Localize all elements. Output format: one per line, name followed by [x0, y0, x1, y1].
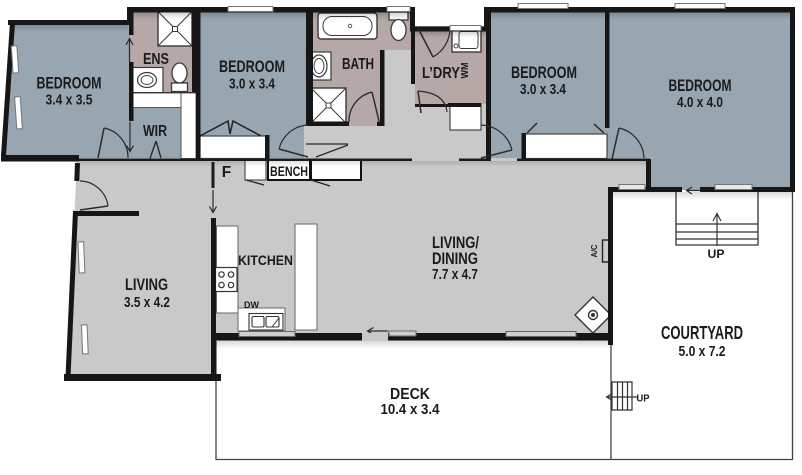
- svg-text:BENCH: BENCH: [270, 163, 308, 179]
- svg-text:UP: UP: [637, 394, 650, 405]
- svg-text:3.0 x 3.4: 3.0 x 3.4: [520, 81, 567, 98]
- svg-text:COURTYARD: COURTYARD: [661, 323, 743, 343]
- svg-text:LIVING: LIVING: [125, 275, 168, 294]
- svg-text:3.0 x 3.4: 3.0 x 3.4: [229, 76, 276, 93]
- svg-text:WIR: WIR: [143, 123, 167, 140]
- svg-text:7.7 x 4.7: 7.7 x 4.7: [432, 266, 478, 283]
- svg-text:A/C: A/C: [589, 245, 599, 258]
- svg-text:BEDROOM: BEDROOM: [219, 57, 285, 76]
- svg-text:DW: DW: [244, 300, 259, 311]
- svg-text:BEDROOM: BEDROOM: [511, 63, 577, 82]
- svg-text:KITCHEN: KITCHEN: [238, 253, 293, 268]
- svg-text:UP: UP: [708, 249, 725, 261]
- svg-text:3.5 x 4.2: 3.5 x 4.2: [124, 294, 170, 311]
- svg-text:4.0 x 4.0: 4.0 x 4.0: [677, 94, 723, 111]
- svg-text:BEDROOM: BEDROOM: [669, 76, 732, 95]
- svg-text:WM: WM: [460, 63, 471, 79]
- svg-text:10.4 x 3.4: 10.4 x 3.4: [381, 401, 441, 418]
- svg-text:5.0 x 7.2: 5.0 x 7.2: [679, 343, 726, 360]
- svg-text:BATH: BATH: [342, 56, 374, 73]
- svg-text:L’DRY: L’DRY: [422, 65, 460, 82]
- svg-text:BEDROOM: BEDROOM: [37, 74, 102, 93]
- svg-text:F: F: [222, 164, 231, 181]
- svg-text:3.4 x 3.5: 3.4 x 3.5: [46, 92, 93, 109]
- svg-text:ENS: ENS: [143, 51, 169, 68]
